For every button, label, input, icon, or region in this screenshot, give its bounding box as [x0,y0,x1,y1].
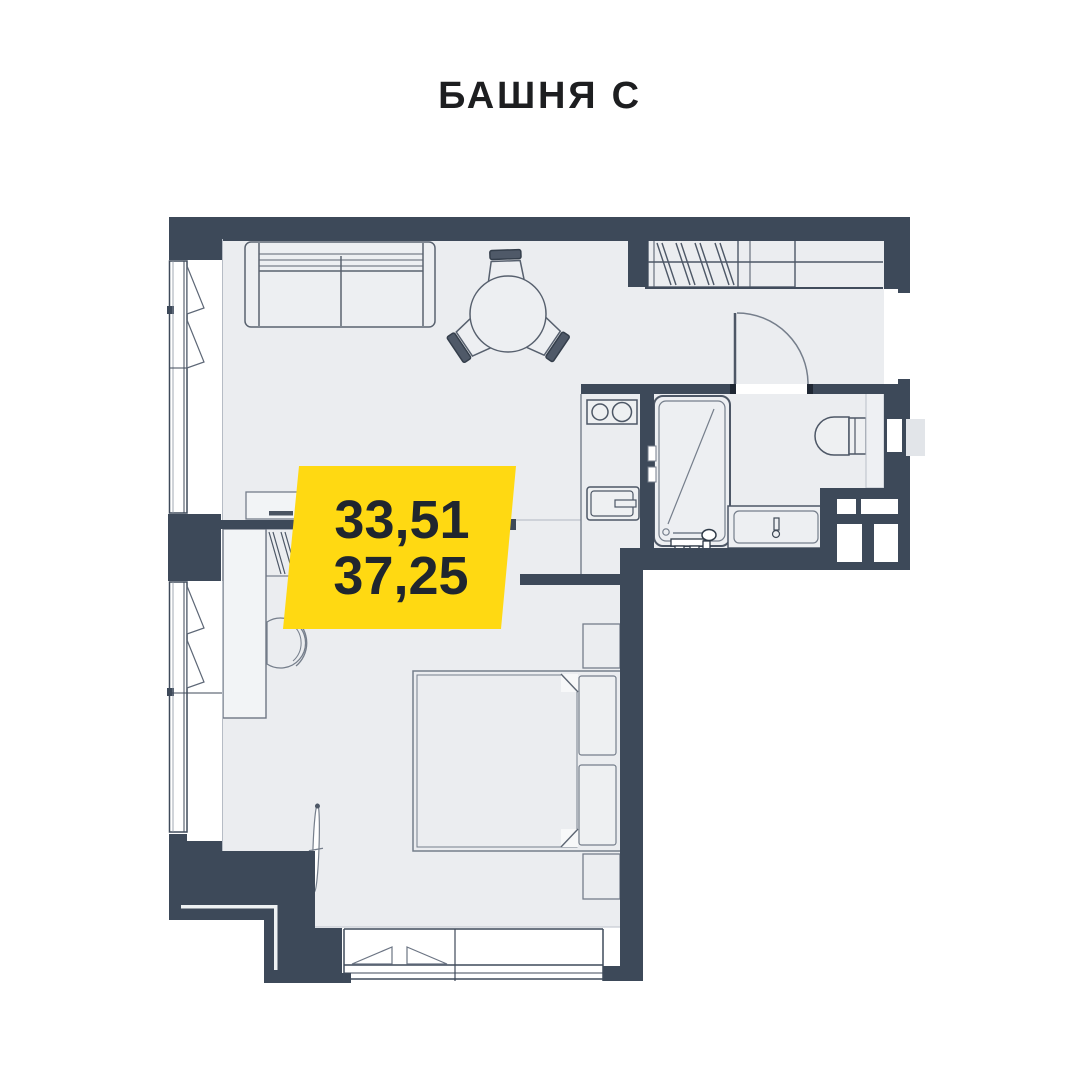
svg-text:33,51: 33,51 [334,490,469,550]
svg-text:37,25: 37,25 [333,546,468,606]
svg-text:БАШНЯ С: БАШНЯ С [438,75,642,117]
